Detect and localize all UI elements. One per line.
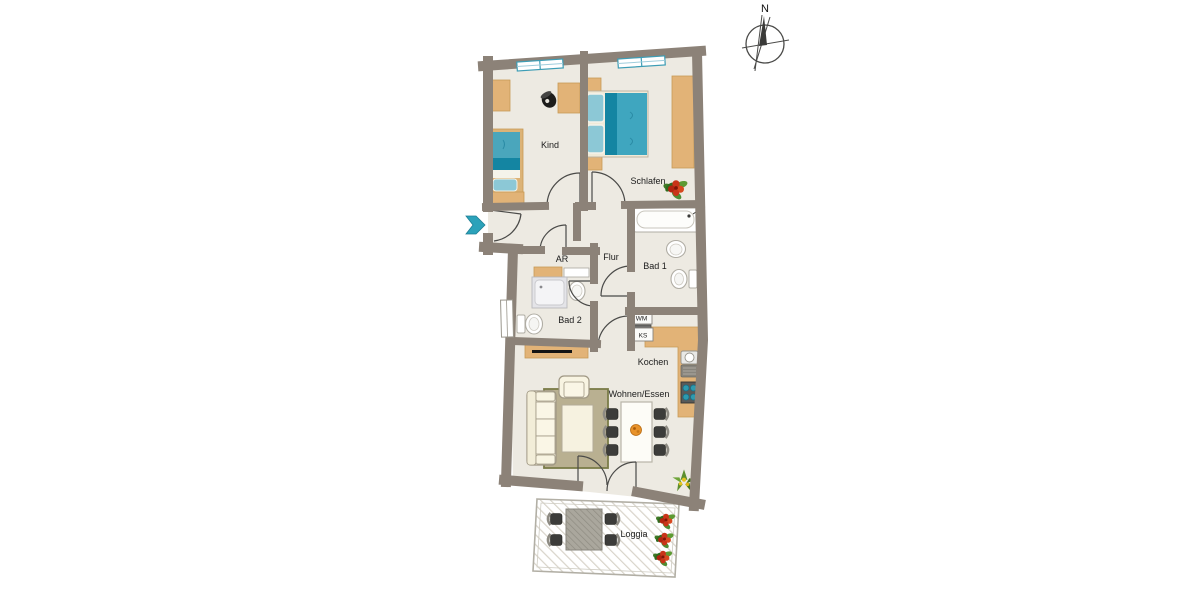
floor-plan-page: Loggia (0, 0, 1200, 600)
wall-bad1-top (625, 204, 701, 205)
bathroom-sink (667, 241, 686, 258)
entrance-arrow-icon (466, 216, 485, 234)
floor-plan-drawing: Loggia (0, 0, 1200, 600)
kitchen-sink (681, 351, 698, 377)
sofa (527, 391, 556, 465)
toilet (671, 270, 697, 289)
dining-table (621, 402, 652, 462)
double-bed (585, 91, 648, 157)
wall-bad2-bottom (513, 341, 597, 344)
toilet (517, 314, 543, 334)
room-label-bad2: Bad 2 (558, 315, 582, 325)
washing-machine-label: WM (636, 316, 648, 323)
ar-shelf (534, 267, 562, 277)
compass-north-label: N (761, 3, 769, 15)
room-label-ar: AR (556, 254, 569, 264)
compass: N (742, 3, 789, 71)
room-label-wohnen-essen: Wohnen/Essen (609, 389, 670, 399)
fridge-label: KS (639, 333, 648, 340)
bathtub (633, 208, 699, 232)
room-label-flur: Flur (603, 252, 619, 262)
shower (532, 277, 567, 308)
wall-left-lower (506, 249, 513, 482)
loggia-area: Loggia (533, 499, 679, 577)
bad2-window (501, 300, 514, 337)
room-label-bad1: Bad 1 (643, 261, 667, 271)
room-label-kind: Kind (541, 140, 559, 150)
room-label-loggia: Loggia (620, 529, 647, 539)
armchair (559, 376, 589, 398)
desk (558, 83, 580, 113)
room-label-kochen: Kochen (638, 357, 669, 367)
wall-hall-top (486, 206, 545, 207)
loggia-table (566, 509, 602, 550)
room-label-schlafen: Schlafen (630, 176, 665, 186)
coffee-table (562, 405, 593, 452)
tv (532, 350, 572, 353)
open-door-leaf (564, 268, 589, 277)
wardrobe (672, 76, 694, 168)
wall-bottom-left (504, 480, 578, 486)
fruit-bowl (631, 425, 642, 436)
